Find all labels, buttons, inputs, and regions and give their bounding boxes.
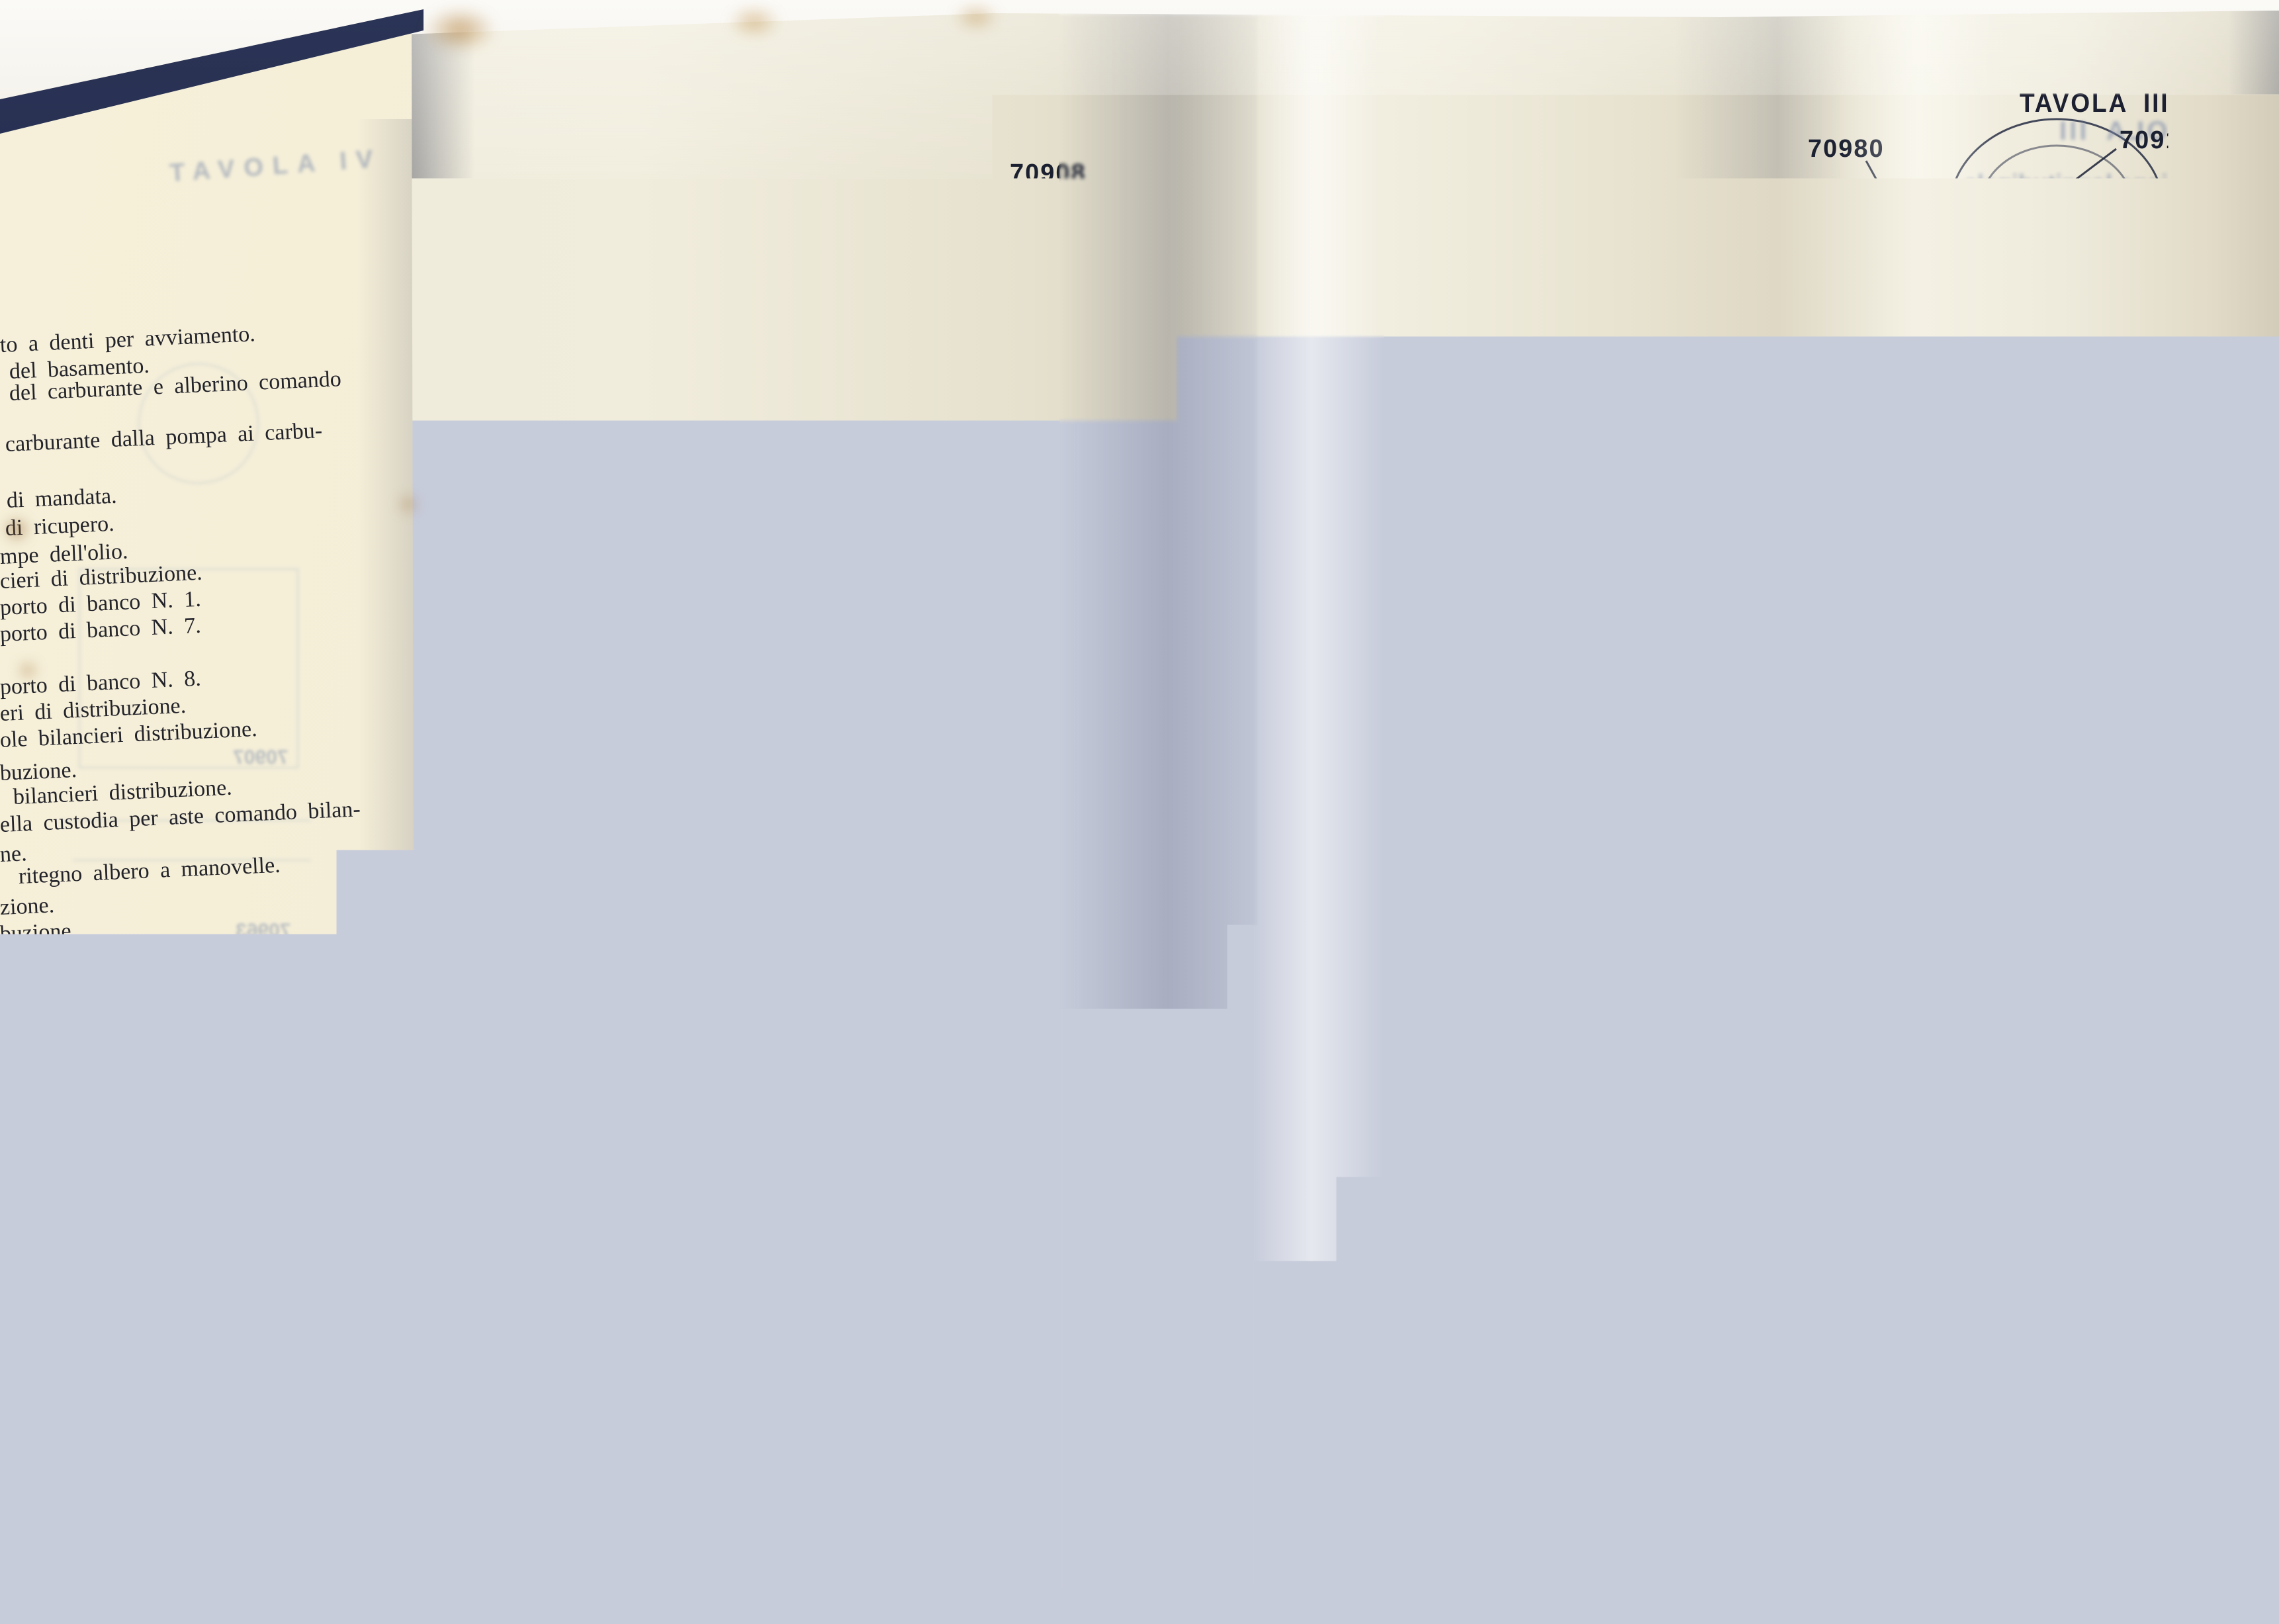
part-label: 70895 (503, 1242, 580, 1267)
left-page-line: porto di banco N. 7. (0, 615, 201, 646)
part-label: 70935 (2135, 614, 2212, 639)
part-label: 70812 (784, 181, 861, 206)
part-label: 70833 (2144, 848, 2221, 873)
instruction-plate (1672, 1158, 1749, 1214)
part-label: 70981 (442, 262, 519, 287)
part-label: 70905 (444, 452, 521, 477)
part-label: 70909 (2147, 906, 2224, 931)
part-label: 70813 (2142, 789, 2219, 815)
plate-header: TAVOLA III (2020, 89, 2169, 118)
scanned-plate-photo: TAVOLA III Sezione longitudinale del mot… (0, 0, 2279, 1624)
part-label: 70872 (440, 326, 517, 351)
master-rod-boss (1673, 527, 1768, 622)
left-page-line: zione. (0, 894, 55, 919)
part-label: 70920 (2125, 317, 2202, 342)
bleed-through-number: 70963 (236, 920, 290, 942)
part-label: 70908 (1010, 161, 1087, 186)
pump-scroll (1976, 817, 2103, 944)
part-label: 70861 (2160, 1246, 2237, 1271)
crank-web (907, 632, 1032, 864)
bleed-through-number: 70960 (242, 1059, 297, 1081)
page-edge-shadow (2229, 0, 2279, 1624)
page-curl-shading (357, 119, 414, 1482)
page-seam-shadow (412, 26, 475, 1502)
intake-pipe (1604, 238, 1960, 421)
part-label: 70907 (496, 953, 572, 978)
part-label: 70802 (442, 390, 519, 415)
bleed-through-header: TAVOLA IV (169, 145, 383, 188)
bleed-through-number: 70999 (250, 1284, 305, 1306)
part-label: 70918 (2120, 128, 2196, 153)
part-label: 70870 (2124, 253, 2201, 279)
bleed-through-number: 70995 (246, 1113, 301, 1136)
part-label: 70873 (480, 729, 557, 754)
part-label: 70936 (2139, 733, 2216, 758)
part-label: 70949 (1638, 1257, 1715, 1282)
left-page-line: di mandata. (6, 485, 117, 512)
part-label: 70899 (1128, 1267, 1205, 1292)
part-label: 70887 (842, 1288, 918, 1314)
left-page-line: di ausiliari. (0, 1120, 107, 1148)
part-label: 70860 (2158, 1184, 2235, 1209)
left-page-line: ne. (0, 842, 27, 866)
accessory-unit (1556, 263, 1767, 368)
part-label: 70906 (488, 840, 565, 866)
left-page-line: carburante dalla pompa ai carbu- (5, 420, 322, 456)
front-gear-housing (552, 320, 881, 909)
left-page-line: to a denti per avviamento. (0, 323, 255, 357)
fold-shadow (1674, 0, 1846, 1624)
part-label: 70919 (2123, 192, 2200, 217)
part-label: 70807 (477, 669, 554, 694)
fold-glare (1841, 0, 2000, 1624)
left-page-line: di ricupero. (5, 513, 114, 540)
part-label: 70808 (492, 897, 568, 922)
fold-glare (1252, 0, 1384, 1624)
part-label: 70803 (500, 1118, 576, 1143)
part-label: 70901 (503, 1179, 580, 1204)
part-label: 70900 (958, 1281, 1035, 1306)
instruction-plate (1507, 1163, 1584, 1219)
part-label: 70910 (487, 785, 564, 810)
plate-caption: SEZIONE LONGITUDINALE DEL MOTORE (925, 1341, 1852, 1383)
left-page-line: ritegno albero a manovelle. (18, 854, 281, 888)
part-label: 70897 (507, 1304, 584, 1330)
part-label: 70858 (2156, 1120, 2233, 1146)
bleed-through-number: 70907 (233, 746, 288, 769)
left-page-line: ante. (0, 1208, 44, 1232)
part-label: 70980 (1808, 136, 1885, 161)
pushrod-tubes (781, 368, 1952, 428)
crankcase-rail (761, 895, 1959, 921)
left-page-line: ggio intermediario comando magneti. (0, 1080, 355, 1118)
part-label: 70811 (2127, 379, 2203, 404)
left-page-line: buzione. (0, 759, 77, 785)
part-label: 70913 (439, 187, 515, 212)
left-page-line: buzione. (0, 920, 77, 946)
